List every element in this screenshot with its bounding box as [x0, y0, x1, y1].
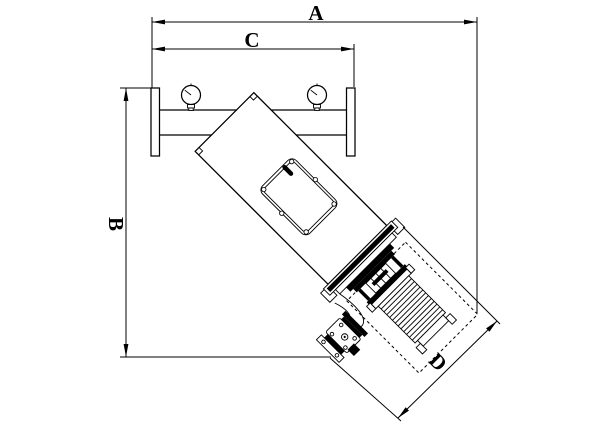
filter-dimension-diagram: A C B D: [0, 0, 605, 428]
dimension-d-label: D: [424, 348, 452, 376]
pressure-gauge-left-icon: [182, 84, 201, 111]
dimension-a: A: [152, 1, 477, 25]
dimension-b-label: B: [104, 217, 128, 231]
drawing-canvas: A C B D: [0, 0, 605, 428]
drain-valve: [316, 311, 372, 367]
dimension-c-label: C: [244, 28, 259, 52]
left-pipe-flange: [151, 88, 160, 156]
right-pipe-flange: [347, 88, 356, 156]
dimension-c: C: [152, 28, 354, 52]
pressure-gauge-right-icon: [308, 84, 327, 111]
dimension-b: B: [104, 88, 128, 357]
dimension-a-label: A: [308, 1, 324, 25]
